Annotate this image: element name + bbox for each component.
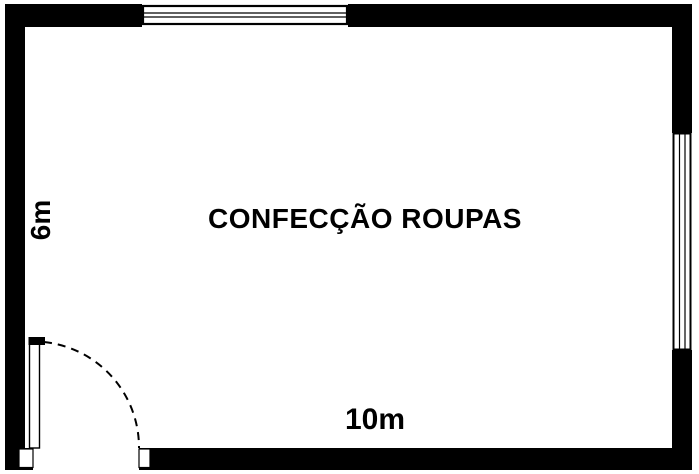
room-label: CONFECÇÃO ROUPAS xyxy=(165,203,565,235)
door-leaf-cap xyxy=(29,337,46,345)
top-wall xyxy=(5,4,692,27)
door-opening xyxy=(33,446,139,474)
dimension-label-width: 10m xyxy=(330,403,420,437)
top-window-icon xyxy=(143,6,347,24)
door-swing-arc xyxy=(44,342,139,448)
window-symbols xyxy=(143,6,691,350)
right-window-icon xyxy=(674,134,691,350)
walls xyxy=(5,4,692,470)
door-leaf xyxy=(30,344,40,448)
door-jamb-right xyxy=(139,449,150,468)
door-jamb-left xyxy=(19,449,33,468)
floor-plan-canvas: CONFECÇÃO ROUPAS 6m 10m xyxy=(0,0,699,474)
dimension-label-height: 6m xyxy=(17,196,65,244)
